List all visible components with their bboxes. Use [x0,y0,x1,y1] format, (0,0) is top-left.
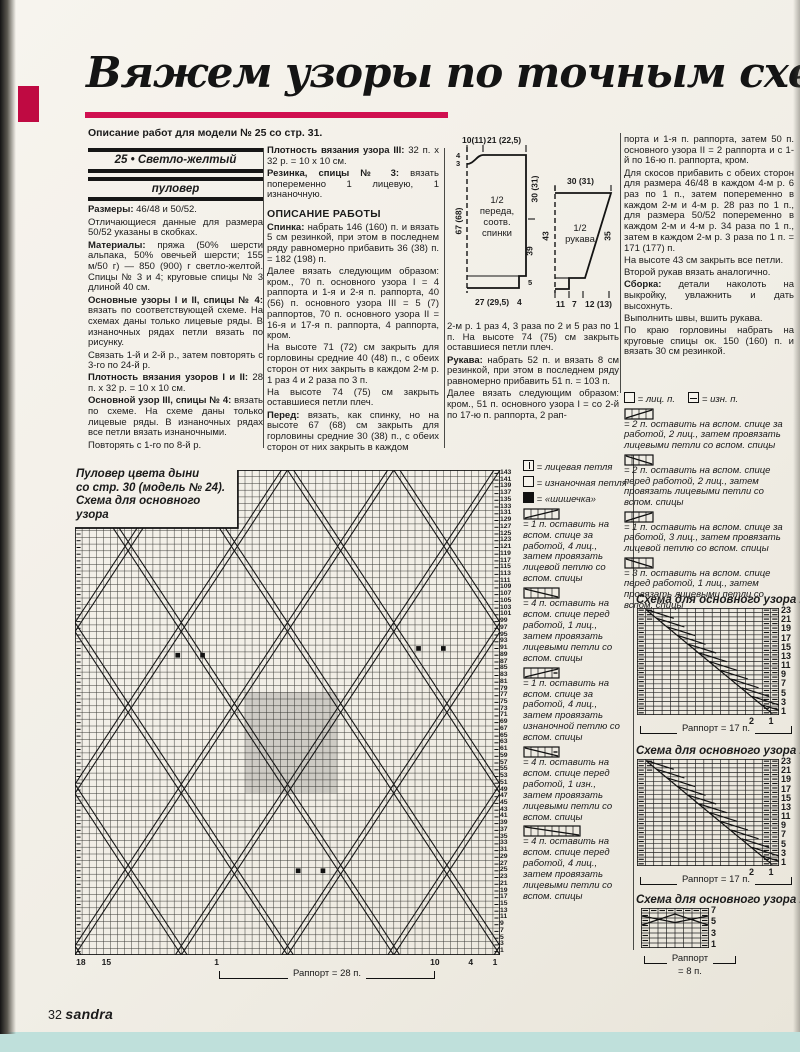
paragraph: Перед: вязать, как спинку, но на высоте … [267,411,439,454]
page-footer: 32 sandra [48,1006,113,1022]
chart-1-rapport: Раппорт = 17 п. [640,723,792,734]
legend-label: = 4 п. оставить на вспом. спице перед ра… [523,757,612,823]
chart-3-rapport-value: = 8 п. [644,966,736,977]
legend-row: = 1 п. оставить на вспом. спице за работ… [624,511,794,555]
paragraph: По краю горловины набрать на круговые сп… [624,326,794,358]
stitch-legend-main: = лицевая петля = изнаночная петля = «ши… [523,460,627,905]
stitch-number: 10 [430,957,439,967]
measure-label: 5 [528,278,532,287]
stitch-number: 18 [76,957,85,967]
measure-label: 10(11) [462,135,486,145]
paragraph: Плотность вязания узоров I и II: 28 п. х… [88,373,263,394]
measure-label: 7 [572,299,577,309]
paragraph: Резинка, спицы № 3: вязать попеременно 1… [267,169,439,201]
legend-label: = 2 п. оставить на вспом. спице за работ… [624,419,783,451]
piece-label-front: 1/2 переда, соотв. спинки [471,195,523,239]
paragraph: Выполнить швы, вшить рукава. [624,314,794,325]
knit-stitch-icon [523,476,534,487]
measure-label: 30 (31) [567,176,594,186]
column-4: порта и 1-я п. раппорта, затем 50 п. осн… [624,135,794,360]
row-number: 3 [711,929,723,937]
paragraph: Размеры: 46/48 и 50/52. [88,205,263,216]
chart-3-grid [641,908,709,948]
stitch-number: 1 [493,957,498,967]
model-header: 25 • Светло-желтый [88,148,263,173]
legend-label: = 1 п. оставить на вспом. спице за работ… [624,522,783,554]
column-divider [263,148,264,448]
measure-label: 27 (29,5) [475,297,509,307]
magazine-brand: sandra [65,1006,113,1022]
legend-label: = лиц. п. [638,394,675,405]
measure-label: 35 [603,231,613,240]
purl-stitch-icon [688,392,699,403]
paragraph: Рукава: набрать 52 п. и вязать 8 см рези… [447,356,619,388]
paragraph: Далее вязать следующим образом: кром., 7… [267,267,439,342]
chart-2-caption: Схема для основного узора II [636,745,800,757]
measure-label: 12 (13) [585,299,612,309]
paragraph: Отличающиеся данные для размера 50/52 ук… [88,218,263,239]
paragraph: Повторять с 1-го по 8-й р. [88,441,263,452]
column-4-paragraphs: порта и 1-я п. раппорта, затем 50 п. осн… [624,135,794,358]
legend-label: = «шишечка» [537,494,596,505]
measure-label: 67 (68) [453,208,463,235]
chart-3-caption: Схема для основного узора III [636,894,800,906]
paragraph: Далее вязать следующим образом: кром., 5… [447,389,619,421]
paragraph: 2-м р. 1 раз 4, 3 раза по 2 и 5 раз по 1… [447,322,619,354]
paragraph: На высоте 74 (75) см закрыть оставшиеся … [267,388,439,409]
stitch-number: 4 [468,957,473,967]
legend-row: = изнаночная петля [523,476,627,490]
legend-row: = «шишечка» [523,492,627,506]
stitch-legend-right: = лиц. п. = изн. п. = 2 п. оставить на в… [624,392,794,614]
knit-bar-stitch-icon [523,460,534,471]
paragraph: Для скосов прибавить с обеих сторон для … [624,169,794,255]
chart-2-rapport: Раппорт = 17 п. [640,874,792,885]
measure-label: 21 (22,5) [487,135,521,145]
chart-1-grid [637,608,779,715]
paragraph: На высоте 43 см закрыть все петли. [624,256,794,267]
measure-label: 30 (31) [529,176,539,203]
bobble-icon [523,492,534,503]
chart-1-caption: Схема для основного узора I [636,594,800,606]
column-3: 2-м р. 1 раз 4, 3 раза по 2 и 5 раз по 1… [447,322,619,423]
paragraph: Спинка: набрать 146 (160) п. и вязать 5 … [267,223,439,266]
measure-label: 11 [556,299,565,309]
main-chart-rapport: Раппорт = 28 п. [219,968,435,979]
legend-label: = 1 п. оставить на вспом. спице за работ… [523,678,620,744]
main-chart-row-numbers: 1431411391371351331311291271251231211191… [500,470,522,955]
scan-shadow [793,0,800,1032]
paragraph: Основные узоры I и II, спицы № 4: вязать… [88,296,263,350]
legend-row: = 1 п. оставить на вспом. спице за работ… [523,508,627,585]
legend-row: = 2 п. оставить на вспом. спице перед ра… [624,454,794,509]
row-number: 7 [711,906,723,914]
legend-label: = 1 п. оставить на вспом. спице за работ… [523,519,609,585]
row-number: 5 [711,917,723,925]
legend-label: = 4 п. оставить на вспом. спице перед ра… [523,836,612,902]
column-divider [444,148,445,448]
paragraph: Связать 1-й и 2-й р., затем повторять с … [88,351,263,372]
chart-3-rapport: Раппорт [644,953,736,964]
legend-label: = 4 п. оставить на вспом. спице перед ра… [523,598,612,664]
paragraph: На высоте 71 (72) см закрыть для горлови… [267,343,439,386]
column-1-paragraphs: Размеры: 46/48 и 50/52.Отличающиеся данн… [88,205,263,451]
measure-label: 39 [525,246,535,255]
column-2: Плотность вязания узора III: 32 п. х 32 … [267,146,439,455]
model-subheader: пуловер [88,177,263,202]
legend-row: = лиц. п. = изн. п. [624,392,794,406]
legend-row: = 4 п. оставить на вспом. спице перед ра… [523,746,627,823]
measure-label: 4 [517,297,522,307]
paragraph: Основной узор III, спицы № 4: вязать по … [88,396,263,439]
page-title: Вяжем узоры по точным схемам [86,48,726,97]
row-number: 1 [500,948,522,955]
column-2-top-paragraphs: Плотность вязания узора III: 32 п. х 32 … [267,146,439,201]
stitch-number: 15 [102,957,111,967]
legend-row: = 2 п. оставить на вспом. спице за работ… [624,408,794,452]
legend-label: = лицевая петля [537,462,613,473]
scan-edge [0,0,16,1034]
measure-label: 3 [456,159,460,168]
paragraph: порта и 1-я п. раппорта, затем 50 п. осн… [624,135,794,167]
paragraph: Второй рукав вязать аналогично. [624,268,794,279]
legend-label: = изнаночная петля [537,478,627,489]
paragraph: Плотность вязания узора III: 32 п. х 32 … [267,146,439,167]
legend-row: = лицевая петля [523,460,627,474]
column-3-paragraphs: 2-м р. 1 раз 4, 3 раза по 2 и 5 раз по 1… [447,322,619,421]
legend-row: = 4 п. оставить на вспом. спице перед ра… [523,587,627,664]
paragraph: Материалы: пряжа (50% шерсти альпака, 50… [88,241,263,295]
pattern-schematic: 10(11) 21 (22,5) 4 3 67 (68) 30 (31) 39 … [447,131,633,315]
piece-label-sleeve: 1/2 рукава [559,223,601,245]
chart-2-grid [637,759,779,866]
legend-row: = 4 п. оставить на вспом. спице перед ра… [523,825,627,902]
row-number: 1 [711,940,723,948]
column-1: 25 • Светло-желтый пуловер Размеры: 46/4… [88,148,263,453]
stitch-number: 1 [214,957,219,967]
page-subtitle: Описание работ для модели № 25 со стр. 3… [88,127,322,139]
measure-label: 43 [541,231,551,240]
paragraph: Сборка: детали наколоть на выкройку, увл… [624,280,794,312]
main-knitting-chart [75,470,500,955]
section-heading: ОПИСАНИЕ РАБОТЫ [267,209,439,220]
column-2-paragraphs: Спинка: набрать 146 (160) п. и вязать 5 … [267,223,439,454]
legend-label: = 2 п. оставить на вспом. спице перед ра… [624,465,770,508]
legend-label: = изн. п. [702,394,738,405]
magazine-page-scan: Вяжем узоры по точным схемам Описание ра… [0,0,800,1052]
knit-stitch-icon [624,392,635,403]
main-chart-stitch-numbers: 181511041 [75,957,500,967]
red-accent-square [18,86,39,122]
chart-3-row-numbers: 7531 [711,906,723,948]
legend-row: = 1 п. оставить на вспом. спице за работ… [523,667,627,744]
page-number: 32 [48,1008,62,1022]
title-underline [85,112,448,118]
